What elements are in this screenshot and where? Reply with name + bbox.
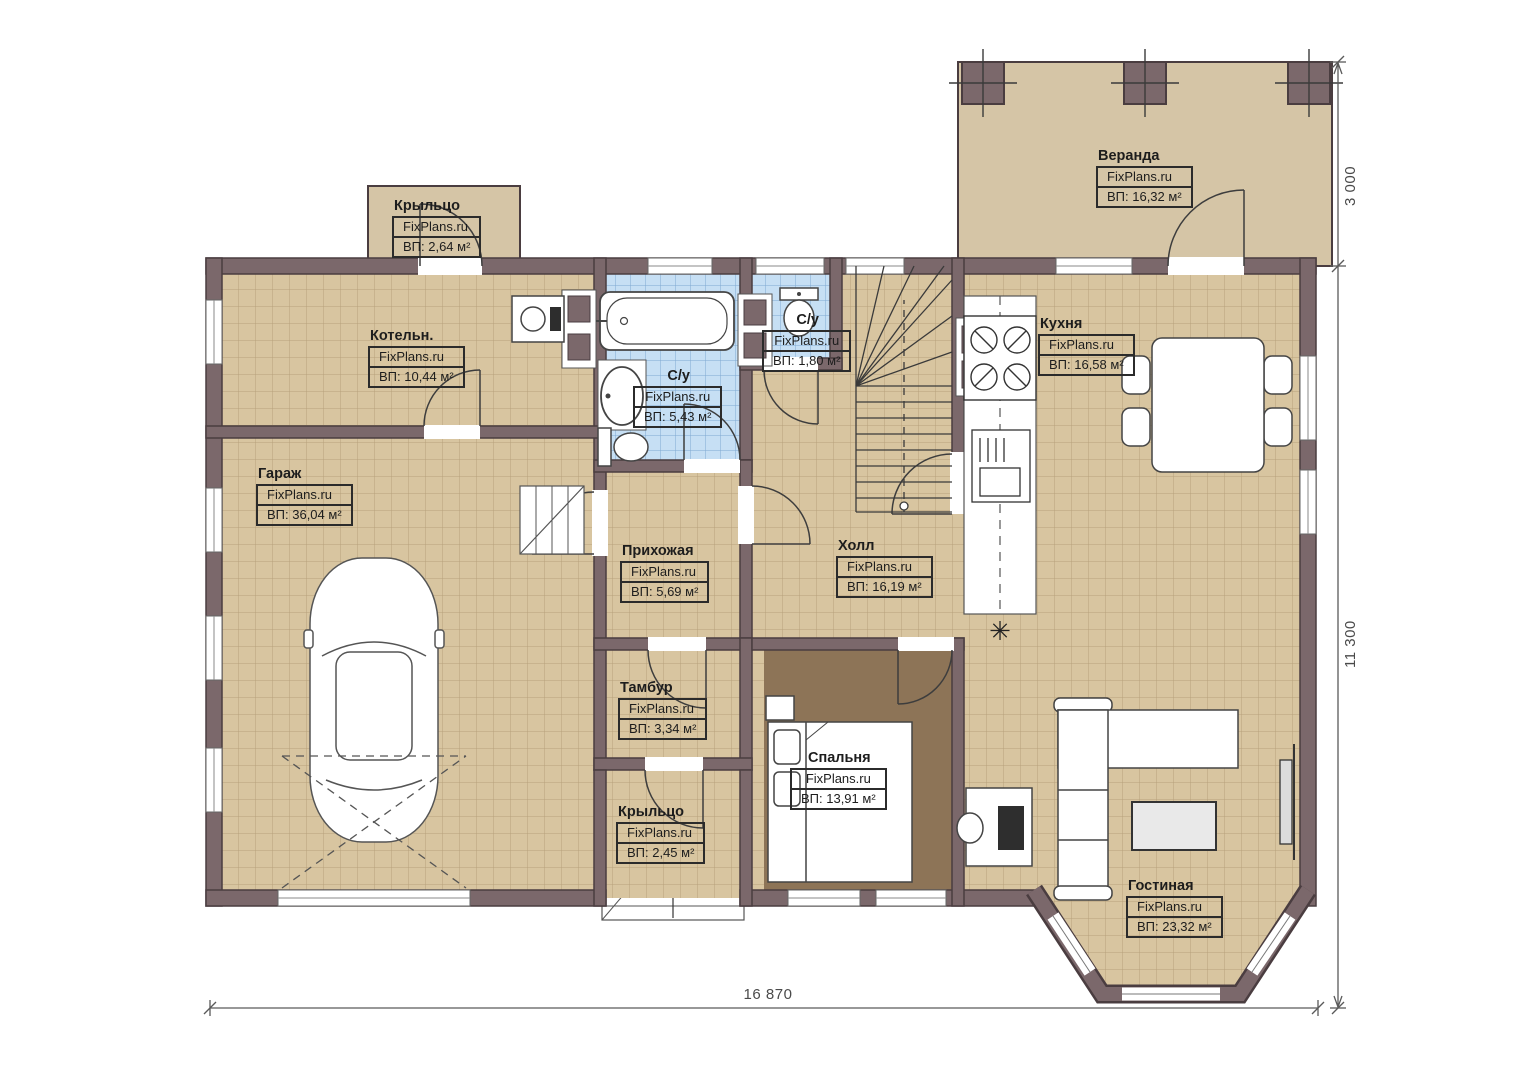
- garage-entry-steps: [520, 486, 584, 554]
- watermark-link: FixPlans.ru: [1098, 168, 1191, 188]
- floor-plan-page: ✳: [0, 0, 1528, 1080]
- room-name: С/у: [635, 368, 722, 384]
- room-label-bedroom: Спальня FixPlans.ruВП: 13,91 м²: [790, 750, 887, 810]
- dimension-veranda-depth: 3 000: [1342, 166, 1359, 206]
- room-area: ВП: 10,44 м²: [370, 368, 463, 386]
- tv-unit: [1280, 744, 1294, 860]
- watermark-link: FixPlans.ru: [792, 770, 885, 790]
- room-label-kitchen: Кухня FixPlans.ruВП: 16,58 м²: [1038, 316, 1135, 376]
- room-area: ВП: 36,04 м²: [258, 506, 351, 524]
- room-label-porch-bottom: Крыльцо FixPlans.ruВП: 2,45 м²: [616, 804, 705, 864]
- watermark-link: FixPlans.ru: [635, 388, 720, 408]
- room-name: Прихожая: [622, 543, 709, 559]
- room-area: ВП: 2,64 м²: [394, 238, 479, 256]
- room-area: ВП: 16,19 м²: [838, 578, 931, 596]
- watermark-link: FixPlans.ru: [620, 700, 705, 720]
- room-label-living: Гостиная FixPlans.ruВП: 23,32 м²: [1126, 878, 1223, 938]
- watermark-link: FixPlans.ru: [764, 332, 849, 352]
- dimension-total-width: 16 870: [728, 986, 808, 1003]
- watermark-link: FixPlans.ru: [258, 486, 351, 506]
- room-label-boiler: Котельн. FixPlans.ruВП: 10,44 м²: [368, 328, 465, 388]
- room-label-porch-top: Крыльцо FixPlans.ruВП: 2,64 м²: [392, 198, 481, 258]
- washing-machine: [512, 296, 564, 342]
- oven-appliance: [972, 430, 1030, 502]
- room-area: ВП: 5,43 м²: [635, 408, 720, 426]
- room-area: ВП: 2,45 м²: [618, 844, 703, 862]
- dimension-total-height: 11 300: [1342, 620, 1359, 668]
- watermark-link: FixPlans.ru: [838, 558, 931, 578]
- room-label-bathroom: С/у FixPlans.ruВП: 5,43 м²: [633, 368, 722, 428]
- garage-car: [304, 558, 444, 842]
- floor-plan-canvas: ✳: [0, 0, 1528, 1080]
- room-label-garage: Гараж FixPlans.ruВП: 36,04 м²: [256, 466, 353, 526]
- room-name: Тамбур: [620, 680, 707, 696]
- room-label-tambour: Тамбур FixPlans.ruВП: 3,34 м²: [618, 680, 707, 740]
- coffee-table: [1132, 802, 1216, 850]
- room-area: ВП: 1,80 м²: [764, 352, 849, 370]
- watermark-link: FixPlans.ru: [1128, 898, 1221, 918]
- room-area: ВП: 16,58 м²: [1040, 356, 1133, 374]
- room-label-wc: С/у FixPlans.ruВП: 1,80 м²: [762, 312, 851, 372]
- room-label-veranda: Веранда FixPlans.ruВП: 16,32 м²: [1096, 148, 1193, 208]
- watermark-link: FixPlans.ru: [394, 218, 479, 238]
- room-area: ВП: 5,69 м²: [622, 583, 707, 601]
- watermark-link: FixPlans.ru: [1040, 336, 1133, 356]
- room-name: Гостиная: [1128, 878, 1223, 894]
- room-name: С/у: [764, 312, 851, 328]
- room-name: Котельн.: [370, 328, 465, 344]
- room-name: Холл: [838, 538, 933, 554]
- room-name: Спальня: [792, 750, 887, 766]
- desk-computer: [957, 788, 1032, 866]
- room-label-hall: Холл FixPlans.ruВП: 16,19 м²: [836, 538, 933, 598]
- room-name: Гараж: [258, 466, 353, 482]
- watermark-link: FixPlans.ru: [618, 824, 703, 844]
- bathtub: [596, 292, 734, 350]
- room-name: Крыльцо: [394, 198, 481, 214]
- fridge-icon: ✳: [989, 616, 1011, 646]
- room-name: Веранда: [1098, 148, 1193, 164]
- room-area: ВП: 16,32 м²: [1098, 188, 1191, 206]
- room-label-hallway: Прихожая FixPlans.ruВП: 5,69 м²: [620, 543, 709, 603]
- watermark-link: FixPlans.ru: [622, 563, 707, 583]
- room-area: ВП: 23,32 м²: [1128, 918, 1221, 936]
- watermark-link: FixPlans.ru: [370, 348, 463, 368]
- room-name: Крыльцо: [618, 804, 705, 820]
- stove: [964, 316, 1036, 400]
- room-name: Кухня: [1040, 316, 1135, 332]
- room-area: ВП: 13,91 м²: [792, 790, 885, 808]
- room-area: ВП: 3,34 м²: [620, 720, 705, 738]
